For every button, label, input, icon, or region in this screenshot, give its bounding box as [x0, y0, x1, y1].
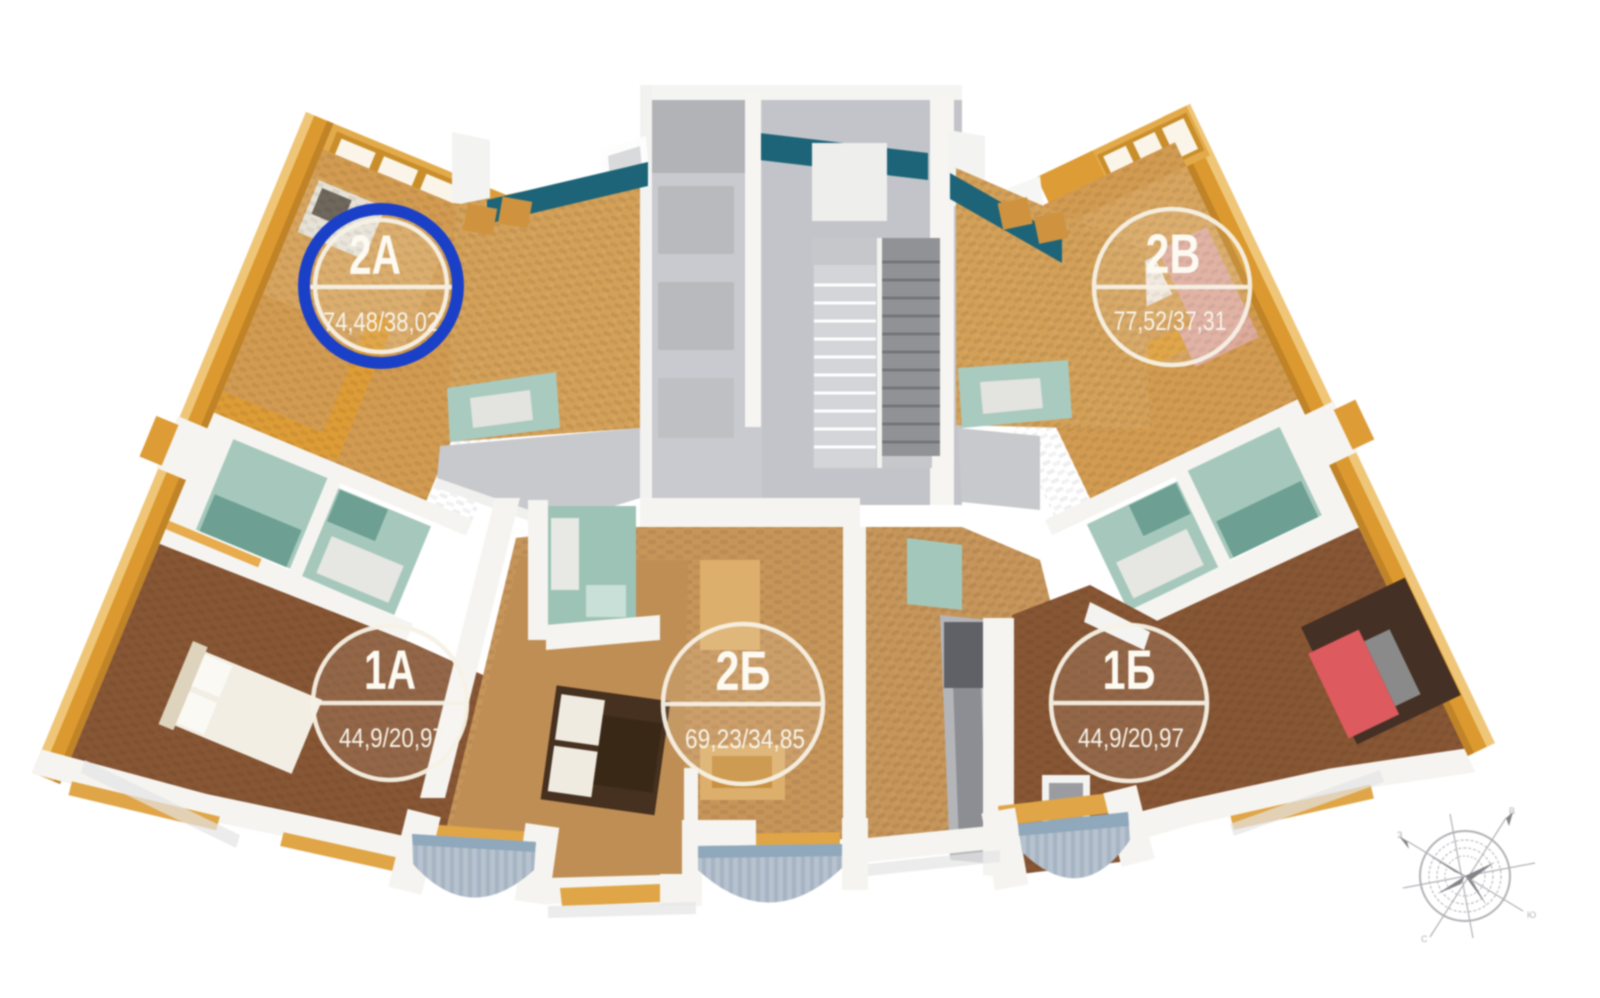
svg-text:2A: 2A: [349, 223, 401, 286]
svg-text:74,48/38,02: 74,48/38,02: [323, 307, 439, 337]
svg-text:Ю: Ю: [1527, 910, 1536, 920]
svg-text:1Б: 1Б: [1103, 638, 1156, 701]
svg-text:44,9/20,97: 44,9/20,97: [339, 723, 445, 753]
svg-text:2Б: 2Б: [716, 639, 771, 702]
svg-text:69,23/34,85: 69,23/34,85: [685, 724, 805, 754]
svg-text:77,52/37,31: 77,52/37,31: [1114, 306, 1227, 336]
svg-text:44,9/20,97: 44,9/20,97: [1078, 723, 1184, 753]
svg-text:1A: 1A: [364, 638, 416, 701]
svg-text:С: С: [1421, 934, 1428, 944]
svg-text:2B: 2B: [1146, 222, 1201, 285]
